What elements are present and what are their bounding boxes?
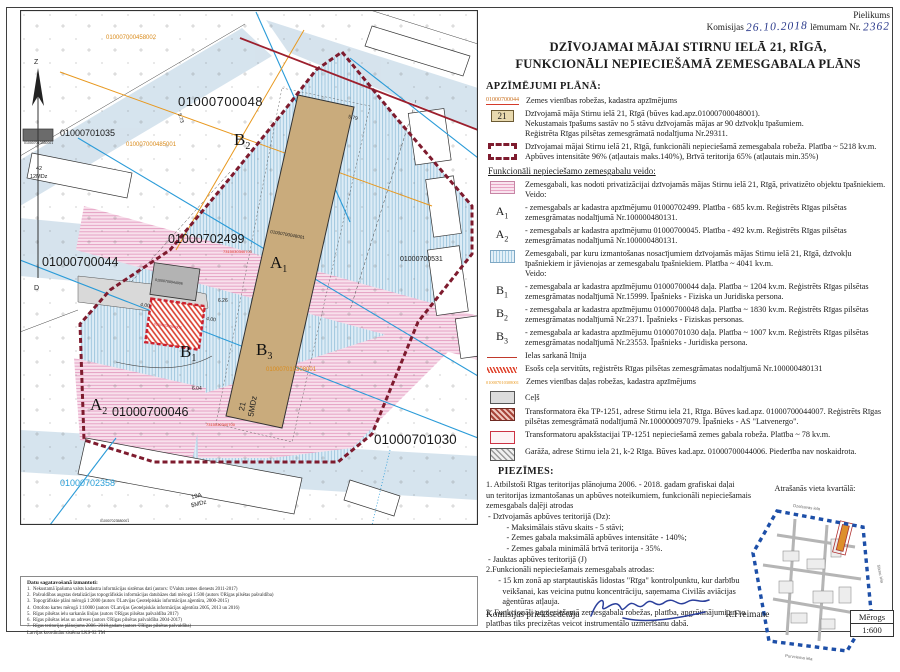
legend-item-redline-text: Ielas sarkanā līnija xyxy=(525,351,890,361)
legend-item-cadastre: 01000700044 Zemes vienības robežas, kada… xyxy=(486,96,890,106)
legend-item-a1-text: - zemesgabals ar kadastra apzīmējumu 010… xyxy=(525,203,890,223)
page-title: DZĪVOJAMAI MĀJAI STIRNU IELĀ 21, RĪGĀ, F… xyxy=(486,39,890,74)
legend-item-house-text: Dzīvojamā māja Stirnu ielā 21, Rīgā (būv… xyxy=(525,109,890,139)
a1-symbol: A1 xyxy=(496,204,509,221)
zone-b3: B xyxy=(256,340,267,359)
a-veido-line: Veido: xyxy=(525,190,890,200)
dashed-boundary-symbol xyxy=(488,143,517,160)
zone-b2: B xyxy=(234,130,245,149)
zone-b3-sub: 3 xyxy=(267,351,272,362)
inset-street-bottom: Purvciema iela xyxy=(784,653,813,661)
plan-map-svg: 01000700044006 01000700044007 Z D 010007… xyxy=(20,10,478,525)
legend-item-b-intro-text: Zemesgabali, par kuru izmantošanas nosac… xyxy=(525,249,890,279)
zone-a1: A xyxy=(270,253,283,272)
handwritten-date: 26.10.2018 xyxy=(746,20,808,35)
legend-item-b-intro: Zemesgabali, par kuru izmantošanas nosac… xyxy=(486,249,890,279)
legend-item-b3-text: - zemesgabala ar kadastra apzīmējumu 010… xyxy=(525,328,890,348)
title-line-1: DZĪVOJAMAI MĀJAI STIRNU IELĀ 21, RĪGĀ, xyxy=(486,39,890,57)
transformer-symbol xyxy=(490,408,515,421)
label-house42-type: 12MDz xyxy=(30,174,48,180)
legend-item-garage-text: Garāža, adrese Stirnu iela 21, k-2 Rīga.… xyxy=(525,447,890,461)
scale-box: Mērogs 1:600 xyxy=(850,610,894,637)
label-parcel-1035: 01000701035 xyxy=(60,128,115,138)
legend-item-substation-text: Transformatoru apakšstacijai TP-1251 nep… xyxy=(525,430,890,444)
road-symbol xyxy=(490,391,515,404)
zone-b2-sub: 2 xyxy=(245,141,250,152)
commission-decision-line: Komisijas 26.10.2018 lēmumam Nr. 2362 xyxy=(486,21,890,34)
sources-lines: 1. Nekustamā īpašuma valsts kadastra inf… xyxy=(27,587,471,637)
legend-item-boundary-text: Dzīvojamai mājai Stirnu ielā 21, Rīgā, f… xyxy=(525,142,890,162)
legend-item-transformer: Transformatora ēka TP-1251, adrese Stirn… xyxy=(486,407,890,427)
label-part-1030: 010007010308001 xyxy=(266,367,317,373)
location-heading: Atrašanās vieta kvartālā: xyxy=(740,484,890,493)
komisijas-label: Komisijas xyxy=(707,22,744,32)
label-parcel-2358: 01000702358 xyxy=(60,478,115,488)
garage-symbol xyxy=(490,448,515,461)
signature-role: Komisijas priekšsēdētāja xyxy=(486,610,579,626)
legend-item-servitude: Esošs ceļa servitūts, reģistrēts Rīgas p… xyxy=(486,364,890,374)
b1-symbol: B1 xyxy=(496,283,508,300)
legend-item-b2-text: - zemesgabala ar kadastra apzīmējumu 010… xyxy=(525,305,890,325)
title-line-2: FUNKCIONĀLI NEPIECIEŠAMĀ ZEMESGABALA PLĀ… xyxy=(486,56,890,74)
label-parcel-48: 01000700048 xyxy=(178,94,263,109)
label-parcel-2499: 01000702499 xyxy=(168,232,245,246)
label-red-code-2: 7315030340700 xyxy=(206,422,236,427)
label-parcel-1035-part: 010007010350001 xyxy=(24,141,53,145)
a-intro-line: Zemesgabali, kas nodoti privatizācijai d… xyxy=(525,180,890,190)
dim-604: 6.04 xyxy=(192,386,202,392)
substation-boundary-symbol xyxy=(490,431,515,444)
label-parcel-44: 01000700044 xyxy=(42,255,119,269)
inset-street-names: Dzelzavas iela Stirnu iela Purvciema iel… xyxy=(784,503,884,661)
legend-item-a-intro-text: Zemesgabali, kas nodoti privatizācijai d… xyxy=(525,180,890,200)
legend-item-a-intro: Zemesgabali, kas nodoti privatizācijai d… xyxy=(486,180,890,200)
cadastre-number-symbol: 01000700044 xyxy=(486,97,519,105)
blue-hatch-symbol xyxy=(490,250,515,263)
zone-a2-sub: 2 xyxy=(102,406,107,417)
legend-heading: APZĪMĒJUMI PLĀNĀ: xyxy=(486,81,890,92)
notes-heading: PIEZĪMES: xyxy=(498,466,890,477)
compass-south-label: D xyxy=(34,285,39,292)
location-block: Atrašanās vieta kvartālā: xyxy=(740,484,890,672)
scale-value: 1:600 xyxy=(851,624,893,636)
inset-street-right: Stirnu iela xyxy=(876,564,885,584)
legend-item-b3: B3 - zemesgabala ar kadastra apzīmējumu … xyxy=(486,328,890,348)
scale-label: Mērogs xyxy=(851,611,893,624)
zone-a2: A xyxy=(90,395,103,414)
label-parcel-2358-part: 010007023580001 xyxy=(100,519,129,523)
legend-subheading: Funkcionāli nepieciešamo zemesgabalu vei… xyxy=(488,166,890,176)
sources-heading: Datu sagatavošanā izmantoti: xyxy=(27,580,471,586)
signature-handwriting xyxy=(587,592,717,626)
legend-item-partborder: 010007010308001 Zemes vienības daļas rob… xyxy=(486,377,890,387)
inset-street-top: Dzelzavas iela xyxy=(792,503,820,511)
pielikums-label: Pielikums xyxy=(486,10,890,21)
label-parcel-531: 01000700531 xyxy=(400,256,443,263)
legend-item-b1: B1 - zemesgabala ar kadastra apzīmējumu … xyxy=(486,282,890,302)
legend-item-b1-text: - zemesgabala ar kadastra apzīmējumu 010… xyxy=(525,282,890,302)
servitude-symbol xyxy=(487,367,517,373)
pink-hatch-symbol xyxy=(490,181,515,194)
document-meta: Pielikums Komisijas 26.10.2018 lēmumam N… xyxy=(486,10,890,34)
label-house42-no: 42 xyxy=(36,166,42,172)
legend-item-boundary: Dzīvojamai mājai Stirnu ielā 21, Rīgā, f… xyxy=(486,142,890,162)
label-parcel-1030: 01000701030 xyxy=(374,432,457,447)
legend-item-redline: Ielas sarkanā līnija xyxy=(486,351,890,361)
plan-map: 01000700044006 01000700044007 Z D 010007… xyxy=(20,10,478,525)
legend-item-a2: A2 - zemesgabals ar kadastra apzīmējumu … xyxy=(486,226,890,246)
b-intro-line: Zemesgabali, par kuru izmantošanas nosac… xyxy=(525,249,890,269)
zone-b1-sub: 1 xyxy=(191,353,196,364)
lemumam-label: lēmumam Nr. xyxy=(810,22,861,32)
signature-name: R.Freimane xyxy=(725,610,769,626)
zone-b1: B xyxy=(180,342,191,361)
data-sources: Datu sagatavošanā izmantoti: 1. Nekustam… xyxy=(20,576,478,626)
signature-row: Komisijas priekšsēdētāja R.Freimane xyxy=(486,592,886,626)
label-building-485001: 010007000485001 xyxy=(126,142,177,148)
legend-item-garage: Garāža, adrese Stirnu iela 21, k-2 Rīga.… xyxy=(486,447,890,461)
legend-item-transformer-text: Transformatora ēka TP-1251, adrese Stirn… xyxy=(525,407,890,427)
red-line-symbol xyxy=(487,357,517,358)
label-building-458002: 010007000458002 xyxy=(106,35,157,41)
b-veido-line: Veido: xyxy=(525,269,890,279)
legend-item-servitude-text: Esošs ceļa servitūts, reģistrēts Rīgas p… xyxy=(525,364,890,374)
legend-item-b2: B2 - zemesgabala ar kadastra apzīmējumu … xyxy=(486,305,890,325)
legend-item-cadastre-text: Zemes vienības robežas, kadastra apzīmēj… xyxy=(526,96,890,106)
legend-item-road-text: Ceļš xyxy=(525,390,890,404)
b3-symbol: B3 xyxy=(496,329,508,346)
location-inset-map: Dzelzavas iela Stirnu iela Purvciema iel… xyxy=(743,495,888,667)
handwritten-number: 2362 xyxy=(863,20,890,34)
dim-626: 6.26 xyxy=(218,298,228,304)
house-symbol: 21 xyxy=(491,110,514,122)
legend-item-road: Ceļš xyxy=(486,390,890,404)
legend-item-house: 21 Dzīvojamā māja Stirnu ielā 21, Rīgā (… xyxy=(486,109,890,139)
legend-item-a2-text: - zemesgabals ar kadastra apzīmējumu 010… xyxy=(525,226,890,246)
zone-a1-sub: 1 xyxy=(282,264,287,275)
b2-symbol: B2 xyxy=(496,306,508,323)
legend-item-a1: A1 - zemesgabals ar kadastra apzīmējumu … xyxy=(486,203,890,223)
compass-north-label: Z xyxy=(34,59,39,66)
legend-item-substation: Transformatoru apakšstacijai TP-1251 nep… xyxy=(486,430,890,444)
document-column: Pielikums Komisijas 26.10.2018 lēmumam N… xyxy=(486,10,890,629)
a2-symbol: A2 xyxy=(496,227,509,244)
label-parcel-46: 01000700046 xyxy=(112,405,189,419)
label-red-code-1: 7315030340700 xyxy=(223,249,253,254)
part-border-symbol: 010007010308001 xyxy=(486,378,519,385)
legend-item-partborder-text: Zemes vienības daļas robežas, kadastra a… xyxy=(526,377,890,387)
